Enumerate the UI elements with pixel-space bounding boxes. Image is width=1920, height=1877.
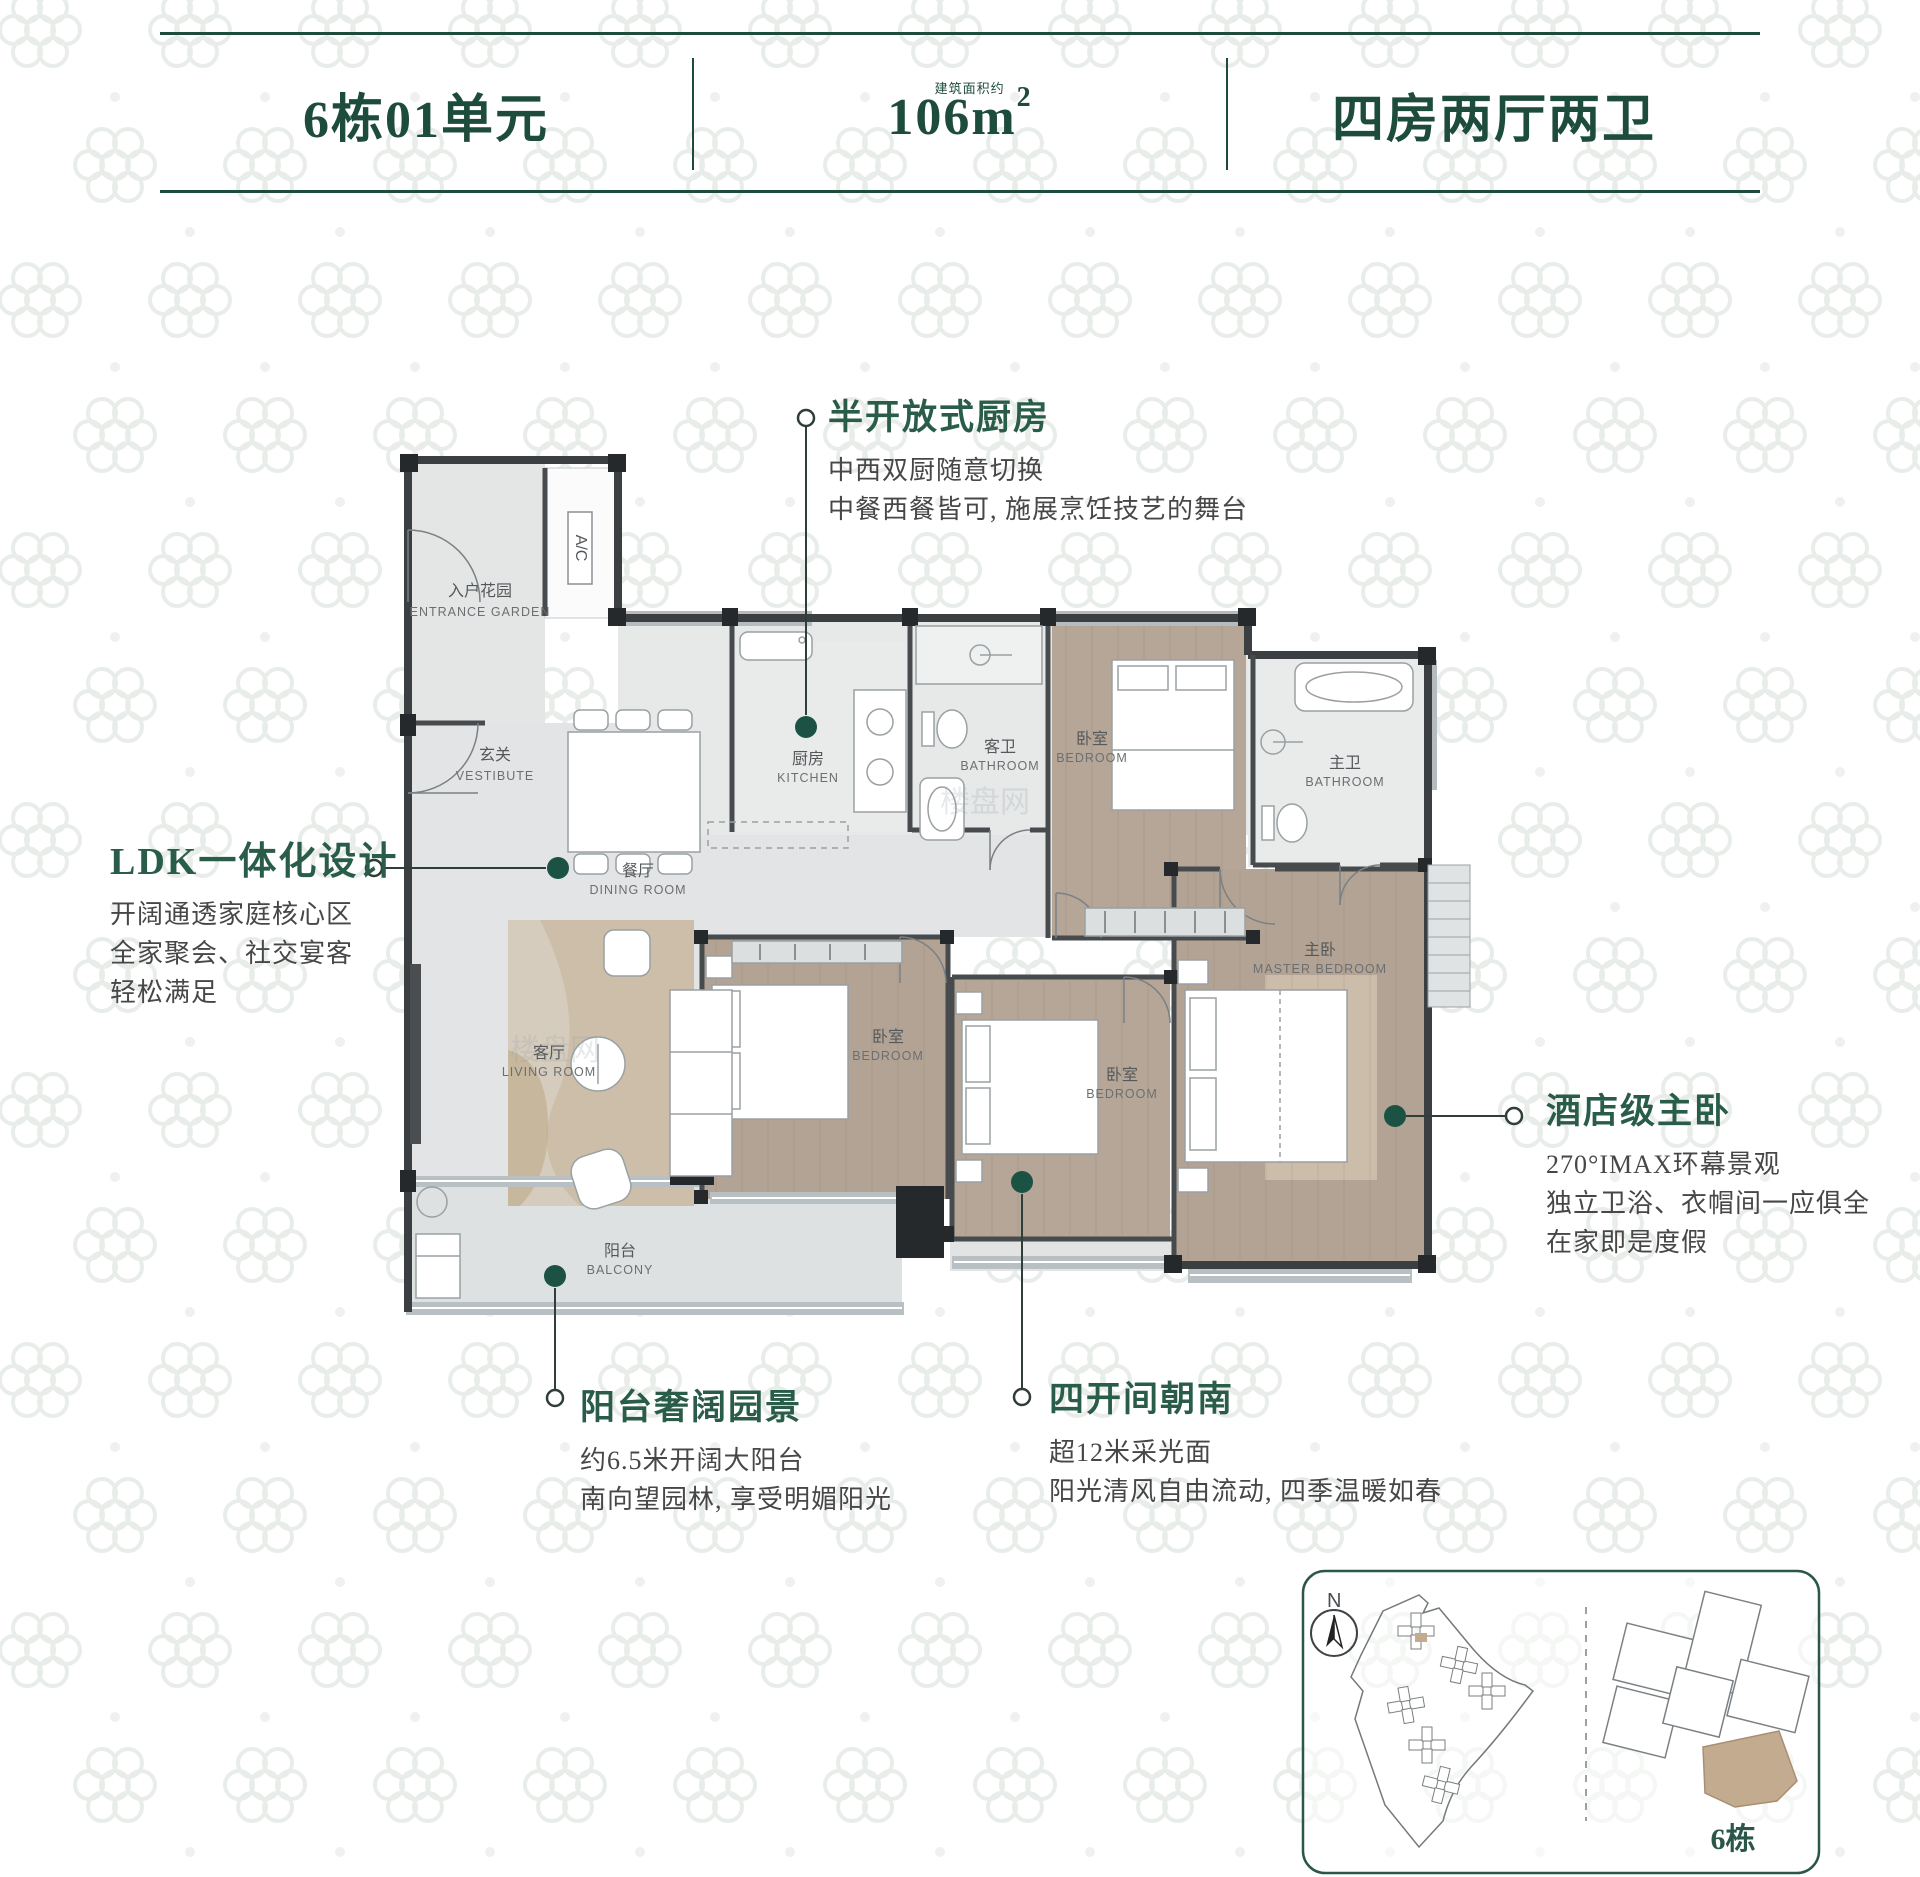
- callout-kitchen: 半开放式厨房 中西双厨随意切换 中餐西餐皆可, 施展烹饪技艺的舞台: [828, 398, 1248, 529]
- callout-ldk-line2: 全家聚会、社交宴客: [110, 934, 398, 973]
- svg-text:楼盘网: 楼盘网: [940, 786, 1030, 819]
- callout-master-line2: 独立卫浴、衣帽间一应俱全: [1546, 1184, 1870, 1223]
- area-value: 106m: [887, 89, 1016, 146]
- label-master-bedroom: 主卧: [1304, 941, 1336, 959]
- callout-south: 四开间朝南 超12米采光面 阳光清风自由流动, 四季温暖如春: [1049, 1380, 1442, 1511]
- wardrobe-hatch: [1428, 865, 1470, 1007]
- label-bedroom-south: 卧室: [1106, 1066, 1138, 1084]
- svg-text:ENTRANCE GARDEN: ENTRANCE GARDEN: [410, 605, 551, 619]
- callout-balcony-line1: 约6.5米开阔大阳台: [580, 1441, 892, 1480]
- svg-text:BEDROOM: BEDROOM: [1056, 751, 1128, 765]
- callout-ldk-title: LDK一体化设计: [110, 842, 398, 882]
- callout-kitchen-title: 半开放式厨房: [828, 398, 1248, 438]
- label-master-bath: 主卫: [1329, 754, 1361, 772]
- svg-text:BATHROOM: BATHROOM: [1305, 775, 1384, 789]
- svg-text:VESTIBUTE: VESTIBUTE: [456, 769, 534, 783]
- callout-master-line3: 在家即是度假: [1546, 1223, 1870, 1262]
- callout-master-title: 酒店级主卧: [1546, 1092, 1870, 1132]
- floorplan-page: 6栋01单元 106m2 建筑面积约 四房两厅两卫: [0, 0, 1920, 1877]
- callout-south-line1: 超12米采光面: [1049, 1433, 1442, 1472]
- unit-area: 106m2 建筑面积约: [694, 58, 1228, 170]
- callout-ldk: LDK一体化设计 开阔通透家庭核心区 全家聚会、社交宴客 轻松满足: [110, 842, 398, 1012]
- svg-text:DINING ROOM: DINING ROOM: [589, 883, 686, 897]
- callout-ldk-line3: 轻松满足: [110, 973, 398, 1012]
- svg-text:BALCONY: BALCONY: [587, 1263, 654, 1277]
- callout-kitchen-line1: 中西双厨随意切换: [828, 451, 1248, 490]
- callout-master-line1: 270°IMAX环幕景观: [1546, 1145, 1870, 1184]
- callout-balcony: 阳台奢阔园景 约6.5米开阔大阳台 南向望园林, 享受明媚阳光: [580, 1388, 892, 1519]
- label-guest-bath: 客卫: [984, 738, 1016, 756]
- svg-text:BEDROOM: BEDROOM: [1086, 1087, 1158, 1101]
- label-entrance-garden: 入户花园: [448, 582, 512, 600]
- svg-text:KITCHEN: KITCHEN: [777, 771, 839, 785]
- header-rule-top: [160, 32, 1760, 35]
- label-vestibule: 玄关: [479, 746, 511, 764]
- callout-south-title: 四开间朝南: [1049, 1380, 1442, 1420]
- area-note: 建筑面积约: [935, 78, 1005, 97]
- area-superscript: 2: [1017, 82, 1033, 113]
- unit-name: 6栋01单元: [160, 58, 694, 170]
- callout-south-line2: 阳光清风自由流动, 四季温暖如春: [1049, 1472, 1442, 1511]
- label-dining: 餐厅: [622, 862, 654, 880]
- site-plan-inset: N 6栋: [1301, 1569, 1821, 1875]
- callout-balcony-title: 阳台奢阔园景: [580, 1388, 892, 1428]
- label-ac: A/C: [572, 535, 589, 562]
- header: 6栋01单元 106m2 建筑面积约 四房两厅两卫: [160, 58, 1760, 170]
- label-living: 客厅: [533, 1044, 565, 1062]
- svg-text:BEDROOM: BEDROOM: [852, 1049, 924, 1063]
- callout-ldk-line1: 开阔通透家庭核心区: [110, 895, 398, 934]
- label-balcony: 阳台: [604, 1242, 636, 1260]
- svg-text:MASTER BEDROOM: MASTER BEDROOM: [1253, 962, 1387, 976]
- site-highlight: [1415, 1633, 1427, 1642]
- label-kitchen: 厨房: [792, 750, 824, 768]
- callout-kitchen-line2: 中餐西餐皆可, 施展烹饪技艺的舞台: [828, 490, 1248, 529]
- callout-balcony-line2: 南向望园林, 享受明媚阳光: [580, 1480, 892, 1519]
- label-bedroom-mid: 卧室: [872, 1028, 904, 1046]
- callout-master: 酒店级主卧 270°IMAX环幕景观 独立卫浴、衣帽间一应俱全 在家即是度假: [1546, 1092, 1870, 1262]
- label-bedroom-top: 卧室: [1076, 730, 1108, 748]
- north-label: N: [1327, 1590, 1341, 1612]
- svg-text:LIVING ROOM: LIVING ROOM: [502, 1065, 596, 1079]
- svg-text:BATHROOM: BATHROOM: [960, 759, 1039, 773]
- header-rule-bottom: [160, 190, 1760, 193]
- unit-layout: 四房两厅两卫: [1228, 58, 1760, 170]
- building-6-label: 6栋: [1711, 1822, 1756, 1856]
